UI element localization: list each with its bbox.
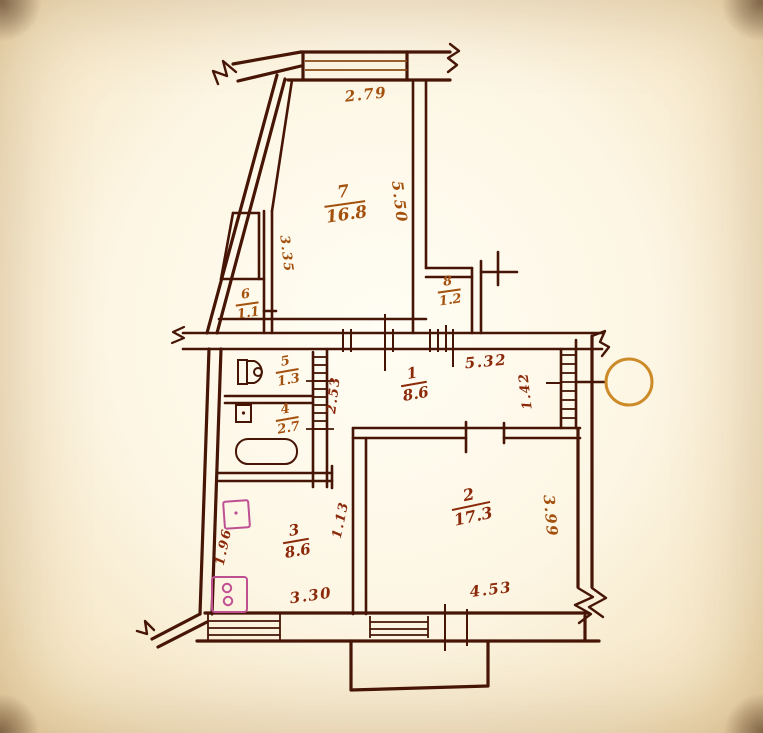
dim-hall-width: 5.32 bbox=[464, 353, 508, 372]
sink-icon bbox=[236, 405, 251, 422]
interior-walls bbox=[172, 80, 606, 614]
toilet-icon bbox=[238, 360, 262, 384]
room-8-label: 8 1.2 bbox=[436, 274, 463, 309]
wall-break-left-mid bbox=[172, 327, 184, 343]
shaft-hatching bbox=[306, 355, 576, 429]
wall-break-bottom-left bbox=[137, 621, 154, 634]
room-5-area: 1.3 bbox=[276, 370, 301, 389]
dim-top-width: 2.79 bbox=[344, 85, 388, 104]
room-2-label: 2 17.3 bbox=[448, 483, 494, 528]
wall-joint-ticks bbox=[343, 314, 561, 651]
stove-icon bbox=[212, 577, 247, 612]
fridge-icon bbox=[223, 500, 250, 529]
exterior-walls bbox=[137, 44, 609, 690]
room-6-area: 1.1 bbox=[236, 303, 260, 321]
room-1-area: 8.6 bbox=[401, 383, 430, 404]
floorplan-drawing bbox=[0, 0, 763, 733]
wall-break-top-right bbox=[448, 44, 459, 72]
top-window-glazing bbox=[305, 61, 407, 70]
wall-notch-top-right bbox=[592, 331, 609, 356]
bathtub-icon bbox=[236, 439, 297, 464]
dim-room7-height: 5.50 bbox=[389, 180, 409, 224]
balcony-outline bbox=[351, 641, 488, 690]
room-4-area: 2.7 bbox=[276, 418, 301, 437]
floorplan-page: 7 16.8 8 1.2 6 1.1 5 1.3 4 2.7 1 8.6 2 1… bbox=[0, 0, 763, 733]
wall-break-right-outer bbox=[589, 588, 606, 617]
column-circle bbox=[606, 359, 652, 405]
room-8-area: 1.2 bbox=[438, 290, 462, 308]
bottom-windows bbox=[208, 613, 428, 641]
room-7-label: 7 16.8 bbox=[322, 181, 369, 226]
room-6-label: 6 1.1 bbox=[234, 287, 261, 322]
room-3-area: 8.6 bbox=[283, 540, 312, 561]
dim-room2-height: 3.99 bbox=[541, 494, 560, 538]
